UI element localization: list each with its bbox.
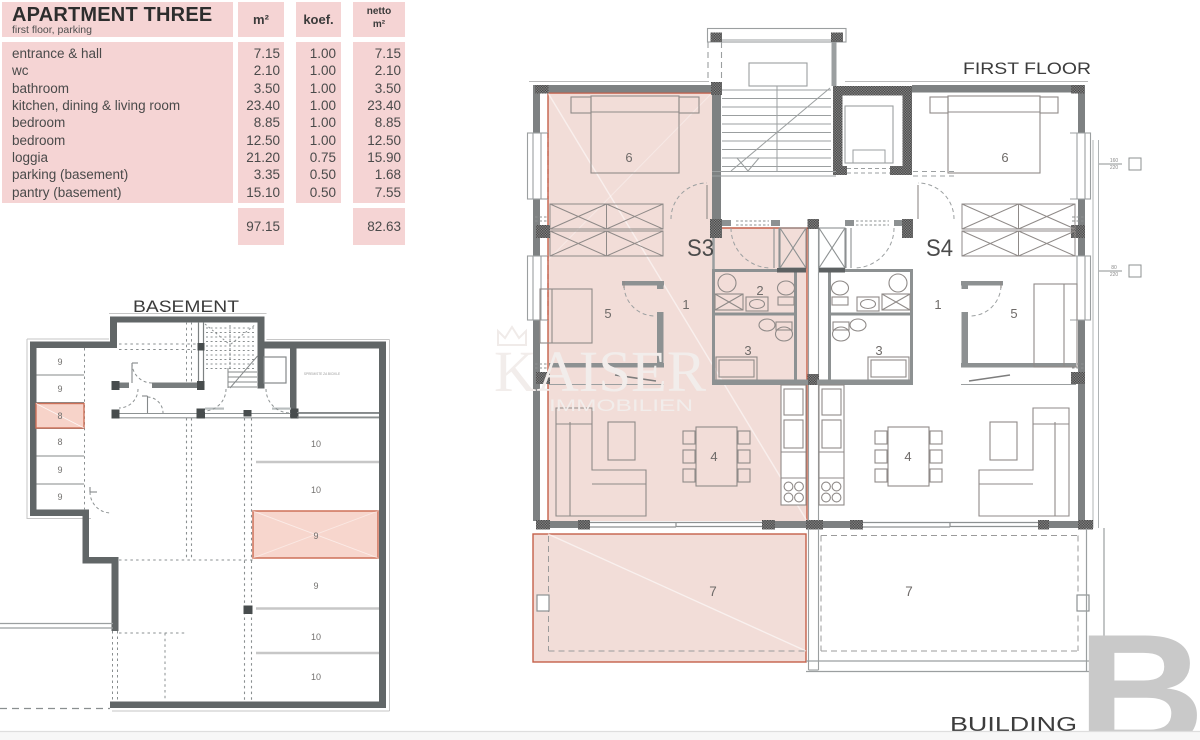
svg-text:2: 2 <box>756 283 763 298</box>
svg-text:10: 10 <box>311 632 321 642</box>
svg-text:10: 10 <box>311 485 321 495</box>
svg-text:FIRST FLOOR: FIRST FLOOR <box>963 60 1091 78</box>
svg-text:SPREMISTE ZA BICIKLE: SPREMISTE ZA BICIKLE <box>304 372 340 376</box>
svg-text:9: 9 <box>57 492 62 502</box>
svg-text:7: 7 <box>905 584 913 599</box>
svg-text:1: 1 <box>682 297 689 312</box>
svg-text:3: 3 <box>875 343 882 358</box>
svg-text:220: 220 <box>1110 272 1119 278</box>
svg-text:5: 5 <box>1010 306 1017 321</box>
svg-text:10: 10 <box>311 672 321 682</box>
svg-text:9: 9 <box>57 357 62 367</box>
svg-text:10: 10 <box>311 439 321 449</box>
svg-text:220: 220 <box>1110 165 1119 171</box>
svg-text:4: 4 <box>904 449 911 464</box>
svg-text:B: B <box>1077 601 1200 740</box>
svg-text:9: 9 <box>313 531 318 541</box>
svg-text:3: 3 <box>744 343 751 358</box>
svg-text:7: 7 <box>709 584 717 599</box>
svg-text:80: 80 <box>1111 265 1117 271</box>
svg-text:IMMOBILIEN: IMMOBILIEN <box>549 396 693 415</box>
svg-text:4: 4 <box>710 449 717 464</box>
svg-text:8: 8 <box>57 437 62 447</box>
svg-text:S3: S3 <box>687 235 714 262</box>
svg-text:9: 9 <box>313 581 318 591</box>
svg-text:S4: S4 <box>926 235 953 262</box>
svg-text:9: 9 <box>57 384 62 394</box>
svg-text:KAISER: KAISER <box>494 339 706 404</box>
svg-text:8: 8 <box>57 411 62 421</box>
svg-text:6: 6 <box>625 150 632 165</box>
svg-text:160: 160 <box>1110 158 1119 164</box>
svg-text:9: 9 <box>57 465 62 475</box>
svg-text:5: 5 <box>604 306 611 321</box>
svg-text:6: 6 <box>1001 150 1008 165</box>
svg-text:1: 1 <box>934 297 941 312</box>
